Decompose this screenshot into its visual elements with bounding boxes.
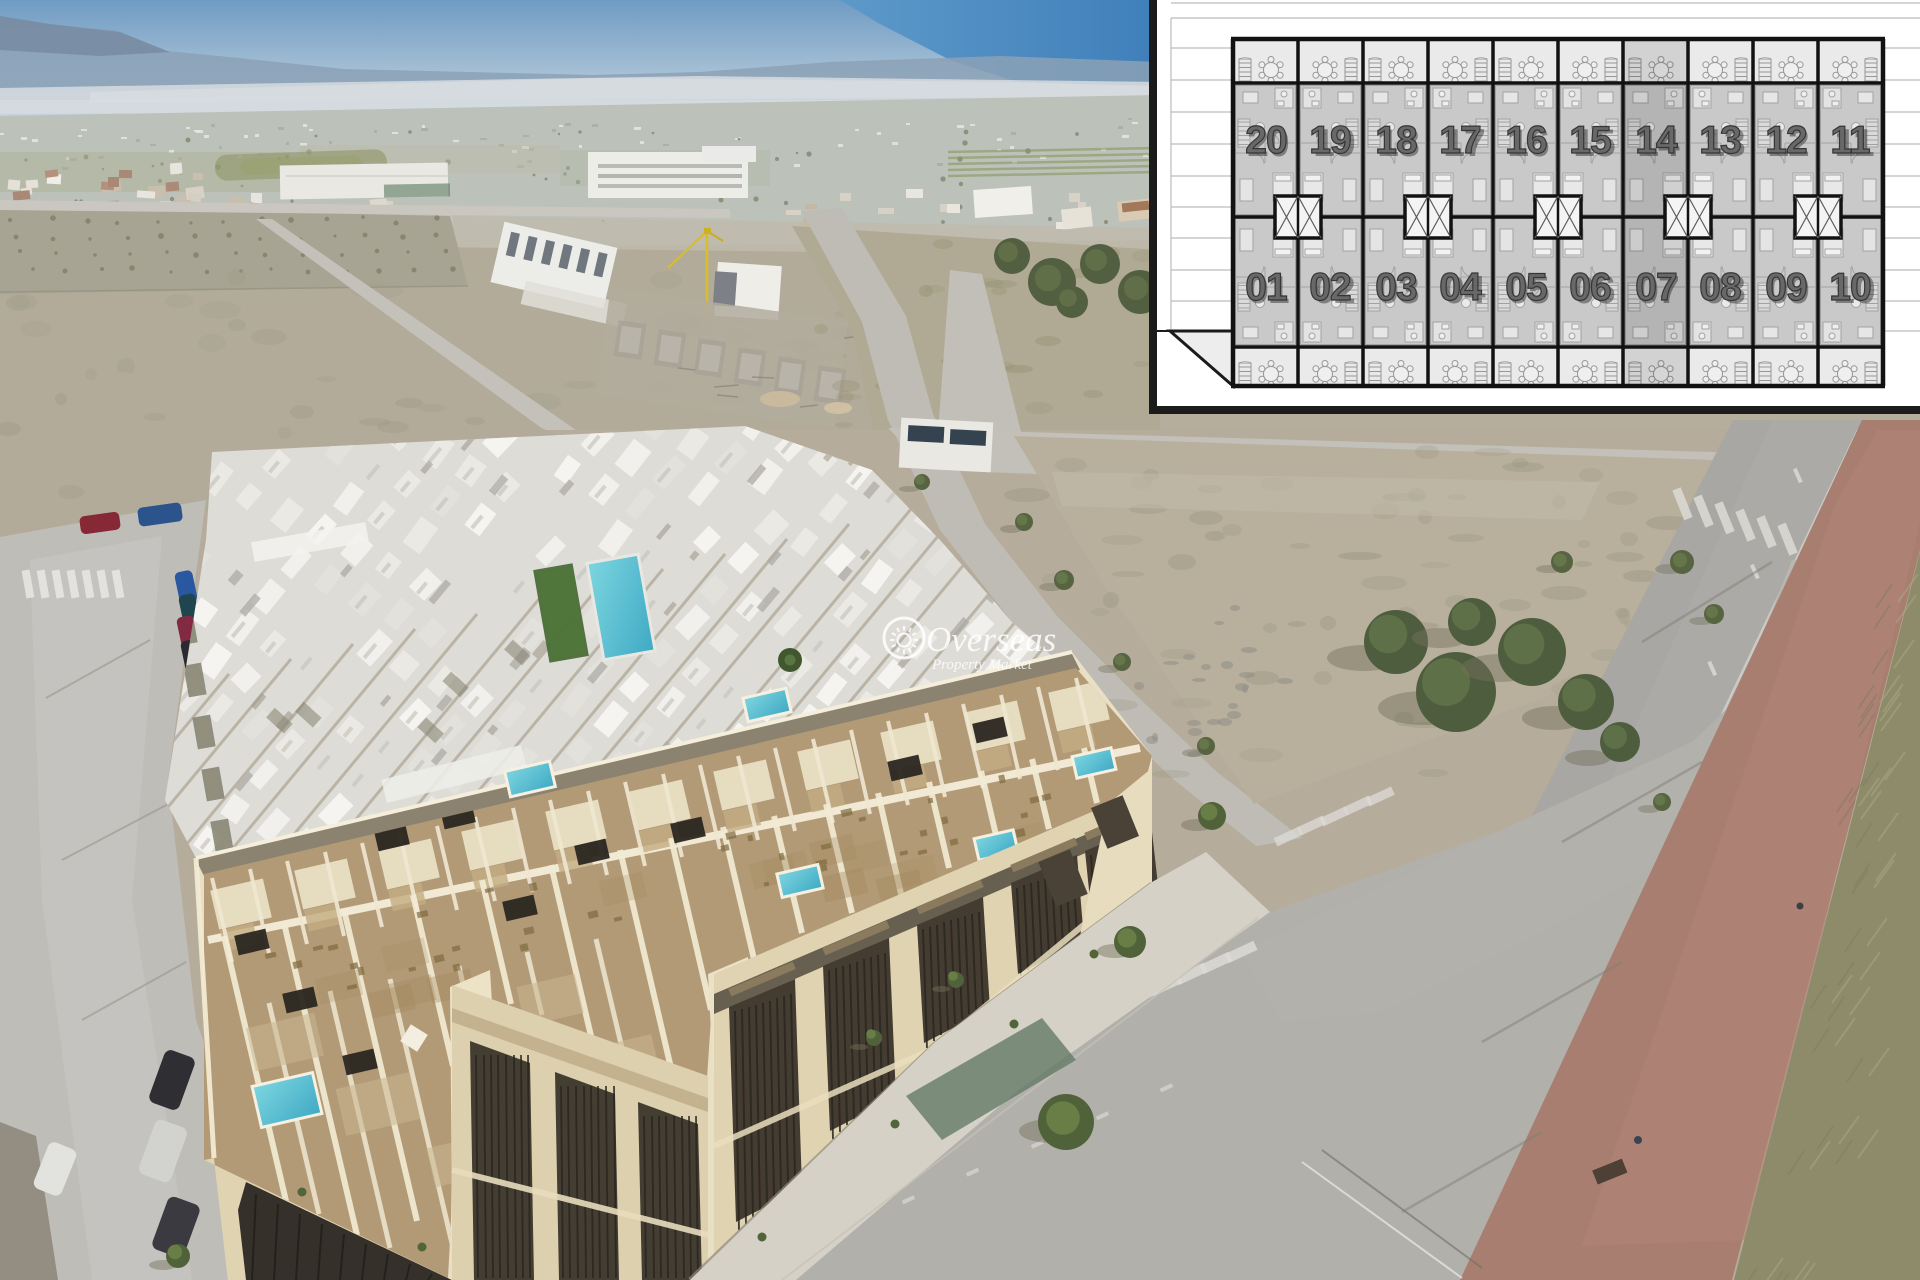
svg-text:15: 15 xyxy=(1569,119,1611,162)
svg-text:05: 05 xyxy=(1505,266,1547,309)
svg-text:17: 17 xyxy=(1439,119,1480,162)
svg-text:03: 03 xyxy=(1375,266,1417,309)
svg-text:18: 18 xyxy=(1375,119,1417,162)
svg-text:Property Market: Property Market xyxy=(931,657,1033,673)
svg-text:Overseas: Overseas xyxy=(926,620,1056,659)
svg-text:11: 11 xyxy=(1830,119,1870,162)
svg-text:19: 19 xyxy=(1309,119,1351,162)
svg-text:12: 12 xyxy=(1765,119,1807,162)
svg-text:02: 02 xyxy=(1309,266,1351,309)
svg-text:16: 16 xyxy=(1505,119,1547,162)
svg-text:01: 01 xyxy=(1245,266,1287,309)
svg-text:06: 06 xyxy=(1569,266,1611,309)
svg-text:08: 08 xyxy=(1699,266,1741,309)
svg-text:07: 07 xyxy=(1635,266,1676,309)
svg-text:14: 14 xyxy=(1635,119,1678,162)
svg-text:09: 09 xyxy=(1765,266,1807,309)
svg-text:10: 10 xyxy=(1829,266,1871,309)
svg-text:13: 13 xyxy=(1699,119,1741,162)
svg-text:20: 20 xyxy=(1245,119,1287,162)
svg-text:04: 04 xyxy=(1439,266,1482,309)
